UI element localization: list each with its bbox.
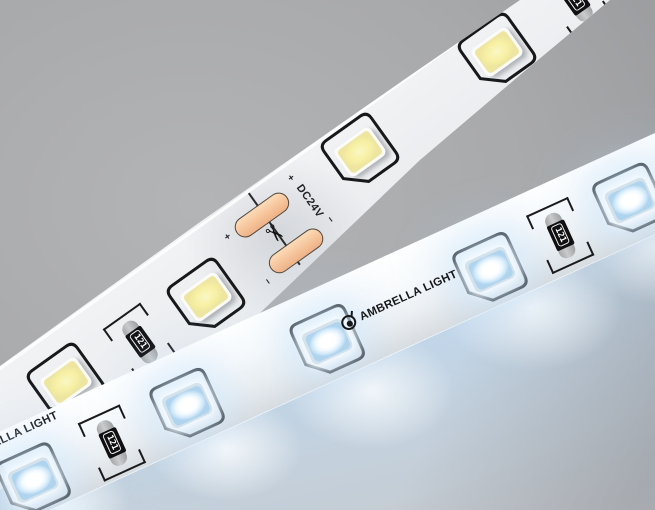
polarity-plus-label: + bbox=[221, 232, 233, 243]
brand-text: AMBRELLA LIGHT bbox=[358, 268, 459, 323]
resistor-chip: 121 bbox=[559, 0, 590, 17]
polarity-minus-label: − bbox=[324, 215, 336, 226]
resistor-body: 121 bbox=[543, 210, 578, 261]
brand-logo-dot bbox=[345, 319, 353, 327]
resistor-code-label: 121 bbox=[564, 0, 587, 13]
resistor: 121 bbox=[78, 404, 146, 481]
voltage-label: DC24V bbox=[294, 182, 326, 220]
resistor-code-label: 121 bbox=[550, 223, 570, 248]
cool-led-module bbox=[0, 438, 76, 510]
brand-print: AMBRELLA LIGHT bbox=[339, 267, 460, 333]
resistor-chip: 121 bbox=[124, 325, 155, 358]
cool-led-module bbox=[588, 158, 655, 243]
resistor-chip: 121 bbox=[546, 219, 574, 251]
resistor-chip: 121 bbox=[98, 427, 126, 459]
resistor: 121 bbox=[526, 197, 594, 274]
led-strip-product-photo: 121 121 + − + DC24V − ✂ A bbox=[0, 0, 655, 510]
resistor-code-label: 121 bbox=[129, 329, 152, 354]
polarity-minus-label: − bbox=[261, 277, 273, 288]
resistor-body: 121 bbox=[119, 318, 161, 367]
brand-logo-tick bbox=[351, 311, 353, 316]
polarity-plus-label: + bbox=[284, 173, 296, 184]
resistor-body: 121 bbox=[94, 418, 129, 469]
resistor-code-label: 121 bbox=[102, 430, 122, 455]
